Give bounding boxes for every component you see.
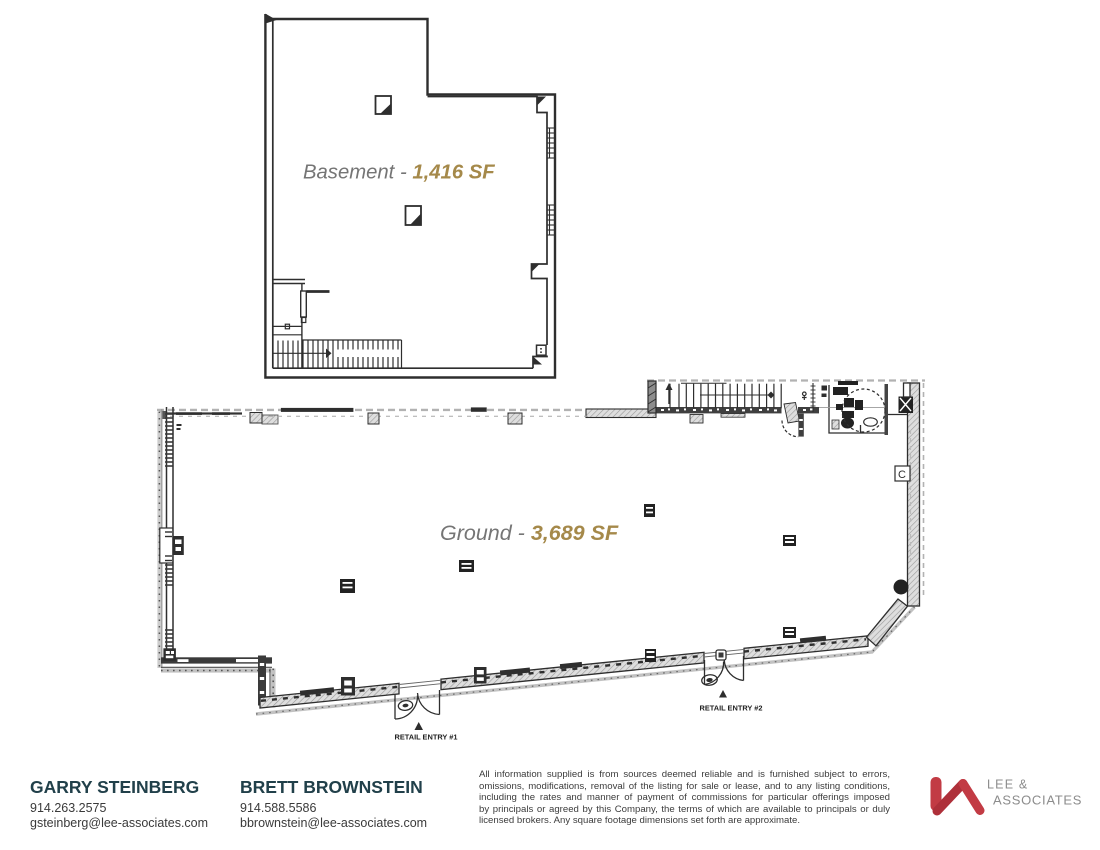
svg-text:RETAIL ENTRY #2: RETAIL ENTRY #2 [700,704,763,713]
svg-text:LEE &: LEE & [987,778,1028,792]
svg-text:Basement - 1,416 SF: Basement - 1,416 SF [303,162,495,184]
svg-text:Ground - 3,689 SF: Ground - 3,689 SF [440,521,619,545]
svg-text:RETAIL ENTRY #1: RETAIL ENTRY #1 [395,733,458,742]
svg-text:ASSOCIATES: ASSOCIATES [993,793,1082,808]
svg-text:C: C [898,469,906,481]
